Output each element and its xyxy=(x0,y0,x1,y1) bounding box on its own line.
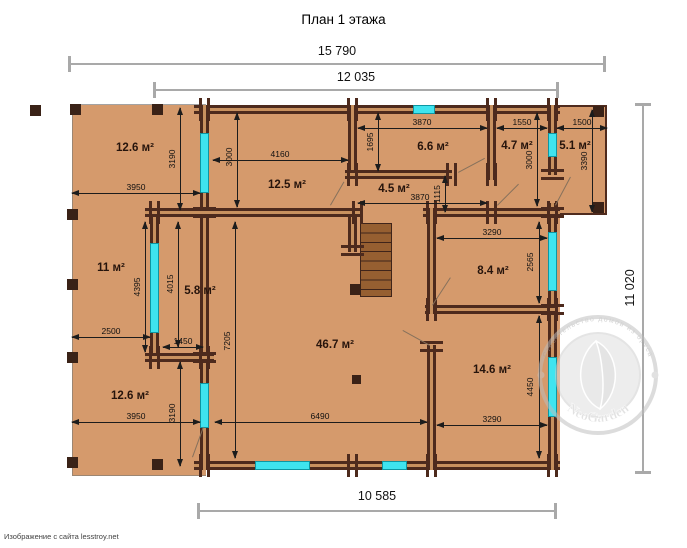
wall-joint xyxy=(541,169,564,180)
dim-tick xyxy=(556,82,559,98)
room-label: 46.7 м² xyxy=(316,339,354,351)
dim-label: 3950 xyxy=(127,411,146,421)
post xyxy=(30,105,41,116)
room-label: 14.6 м² xyxy=(473,364,511,376)
dim-line xyxy=(539,316,540,458)
dim-label: 3000 xyxy=(224,148,234,167)
wall-joint xyxy=(347,163,358,186)
room-label: 6.6 м² xyxy=(417,141,449,153)
dim-label: 1115 xyxy=(432,185,442,203)
post xyxy=(67,457,78,468)
room-label: 12.6 м² xyxy=(111,390,149,402)
post xyxy=(67,209,78,220)
leaf-icon xyxy=(581,341,603,409)
dim-label: 4015 xyxy=(165,275,175,294)
dim-label: 1500 xyxy=(573,117,592,127)
wall-joint xyxy=(347,454,358,477)
dim-line xyxy=(537,113,538,206)
wall-joint xyxy=(426,454,437,477)
dim-label: 4450 xyxy=(525,378,535,397)
overall-dim-line xyxy=(70,63,605,65)
dim-label: 3290 xyxy=(483,414,502,424)
dim-line xyxy=(557,128,607,129)
dim-tick xyxy=(603,56,606,72)
room-label: 11 м² xyxy=(97,262,125,274)
watermark-name-text: NeoGarden xyxy=(564,401,632,426)
dim-line xyxy=(592,110,593,212)
wall-joint xyxy=(199,98,210,121)
dim-line xyxy=(215,422,427,423)
dim-label: 3870 xyxy=(413,117,432,127)
stair-newel-post xyxy=(350,284,361,295)
wall-joint xyxy=(149,201,160,224)
window xyxy=(413,105,435,114)
dim-label: 4160 xyxy=(271,149,290,159)
watermark-disc xyxy=(556,333,640,417)
window xyxy=(150,243,159,333)
dim-label: 6490 xyxy=(311,411,330,421)
dim-label: 3870 xyxy=(411,192,430,202)
dim-line xyxy=(378,113,379,171)
wall-interior-e xyxy=(345,170,452,179)
wall-joint xyxy=(341,245,364,256)
room-label: 5.1 м² xyxy=(559,140,591,152)
dim-line xyxy=(539,222,540,303)
room-post xyxy=(352,375,361,384)
overall-dim-label: 11 020 xyxy=(623,269,637,306)
dim-label: 4395 xyxy=(132,278,142,297)
dim-label: 1695 xyxy=(365,133,375,152)
dim-label: 1450 xyxy=(174,336,193,346)
wall-joint xyxy=(547,298,558,321)
watermark-dot xyxy=(652,372,659,379)
dim-label: 3290 xyxy=(483,227,502,237)
dim-line xyxy=(497,128,547,129)
dim-line xyxy=(437,238,547,239)
window xyxy=(382,461,407,470)
wall-joint xyxy=(199,454,210,477)
wall-joint xyxy=(547,454,558,477)
window xyxy=(548,357,557,417)
dim-line xyxy=(358,203,487,204)
dim-line xyxy=(445,176,446,212)
overall-dim-line xyxy=(155,89,558,91)
post xyxy=(70,104,81,115)
dim-tick xyxy=(635,103,651,106)
dim-label: 3190 xyxy=(167,150,177,169)
source-credit: Изображение с сайта lesstroy.net xyxy=(4,532,119,541)
overall-dim-label: 10 585 xyxy=(358,489,396,503)
dim-tick xyxy=(554,503,557,519)
dim-tick xyxy=(197,503,200,519)
post xyxy=(67,352,78,363)
window xyxy=(200,133,209,193)
room-label: 4.5 м² xyxy=(378,183,410,195)
wall-joint xyxy=(426,201,437,224)
wall-joint xyxy=(486,98,497,121)
room-label: 12.6 м² xyxy=(116,142,154,154)
room-label: 12.5 м² xyxy=(268,179,306,191)
wall-joint xyxy=(486,163,497,186)
floor-plan-page: План 1 этажа xyxy=(0,0,687,548)
dim-tick xyxy=(68,56,71,72)
window xyxy=(255,461,310,470)
staircase xyxy=(360,223,392,297)
post xyxy=(152,104,163,115)
dim-line xyxy=(235,222,236,458)
dim-label: 1550 xyxy=(513,117,532,127)
dim-label: 3950 xyxy=(127,182,146,192)
window xyxy=(200,383,209,428)
dim-label: 3390 xyxy=(579,152,589,171)
room-label: 5.8 м² xyxy=(184,285,216,297)
wall-joint xyxy=(149,346,160,369)
leaf-icon xyxy=(593,341,615,409)
room-label: 8.4 м² xyxy=(477,265,509,277)
dim-line xyxy=(178,222,179,347)
window xyxy=(548,232,557,291)
dim-line xyxy=(180,108,181,210)
wall-interior-h2 xyxy=(427,345,436,470)
dim-tick xyxy=(635,471,651,474)
dim-line xyxy=(145,222,146,352)
wall-interior-g xyxy=(425,305,557,314)
overall-dim-label: 15 790 xyxy=(318,44,356,58)
wall-joint xyxy=(193,207,216,218)
wall-joint xyxy=(547,98,558,121)
dim-line xyxy=(237,113,238,207)
dim-label: 2500 xyxy=(102,326,121,336)
post xyxy=(152,459,163,470)
dim-line xyxy=(180,362,181,466)
dim-label: 7205 xyxy=(222,332,232,351)
wall-south xyxy=(194,461,560,470)
dim-line xyxy=(163,347,203,348)
overall-dim-line xyxy=(642,105,644,473)
page-title: План 1 этажа xyxy=(0,12,687,27)
dim-tick xyxy=(153,82,156,98)
room-label: 4.7 м² xyxy=(501,140,533,152)
wall-joint xyxy=(347,98,358,121)
overall-dim-line xyxy=(199,510,556,512)
post xyxy=(67,279,78,290)
overall-dim-label: 12 035 xyxy=(337,70,375,84)
dim-line xyxy=(72,337,150,338)
dim-label: 3190 xyxy=(167,404,177,423)
dim-line xyxy=(437,425,547,426)
window xyxy=(548,133,557,157)
dim-label: 2565 xyxy=(525,253,535,272)
svg-text:NeoGarden: NeoGarden xyxy=(564,401,632,426)
dim-label: 3000 xyxy=(524,151,534,170)
